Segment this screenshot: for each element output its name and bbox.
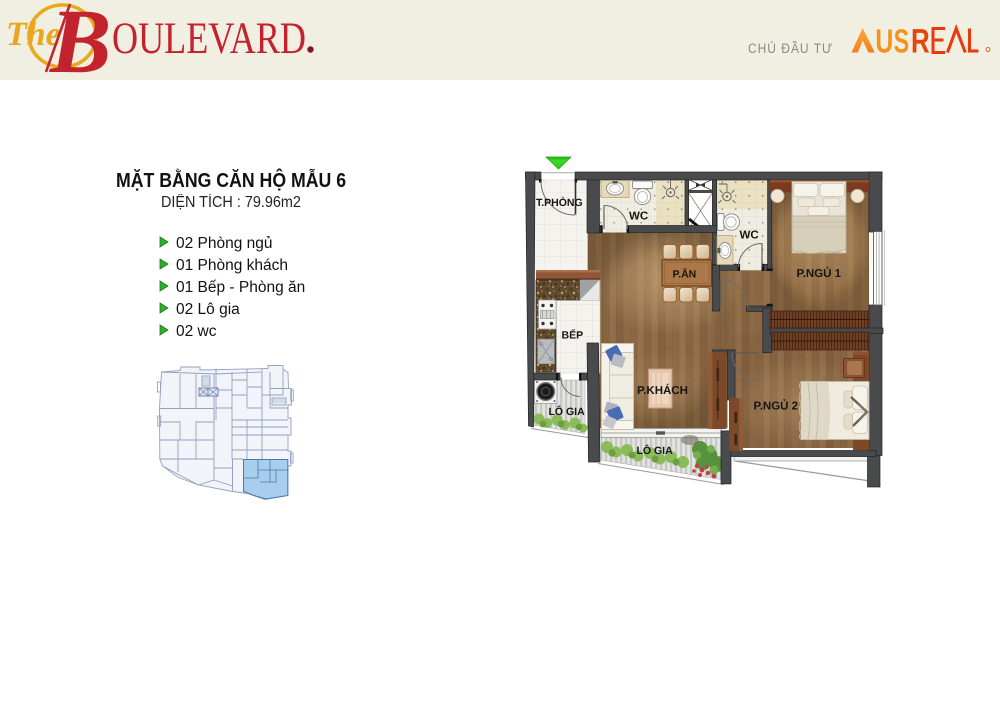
svg-text:OULEVARD: OULEVARD [112, 13, 306, 63]
svg-text:WC: WC [740, 230, 759, 242]
svg-text:P.KHÁCH: P.KHÁCH [637, 383, 688, 397]
svg-text:LÔ GIA: LÔ GIA [549, 405, 586, 418]
svg-text:WC: WC [629, 211, 648, 223]
svg-text:LÔ GIA: LÔ GIA [637, 444, 674, 457]
svg-text:BẾP: BẾP [562, 329, 584, 342]
svg-text:P.NGỦ 2: P.NGỦ 2 [754, 399, 799, 413]
svg-text:S: S [894, 24, 909, 61]
svg-text:U: U [875, 24, 893, 61]
svg-text:R: R [911, 23, 930, 61]
svg-text:T.PHÒNG: T.PHÒNG [536, 196, 583, 209]
svg-text:P.ĂN: P.ĂN [673, 268, 697, 281]
svg-text:P.NGỦ 1: P.NGỦ 1 [797, 266, 842, 280]
